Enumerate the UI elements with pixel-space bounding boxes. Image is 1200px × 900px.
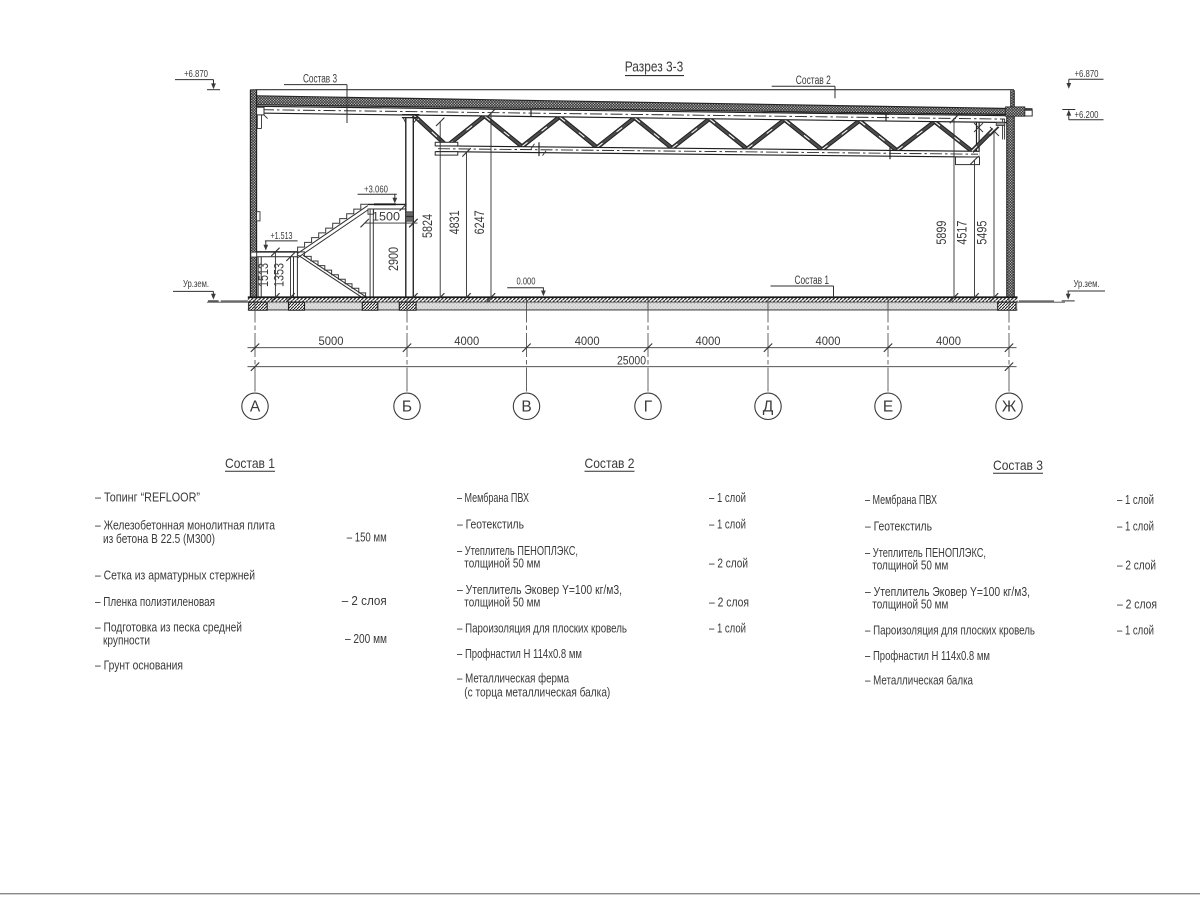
- svg-text:А: А: [250, 399, 261, 416]
- svg-text:Д: Д: [763, 399, 774, 416]
- svg-text:– Топинг “REFLOOR”: – Топинг “REFLOOR”: [95, 491, 200, 505]
- svg-text:4000: 4000: [696, 334, 721, 348]
- svg-text:– 2 слоя: – 2 слоя: [709, 596, 749, 610]
- svg-text:– Металлическая балка: – Металлическая балка: [865, 674, 973, 688]
- svg-text:4000: 4000: [575, 334, 600, 348]
- svg-text:Разрез 3-3: Разрез 3-3: [625, 58, 684, 75]
- svg-text:1353: 1353: [272, 263, 287, 287]
- svg-text:2900: 2900: [386, 247, 401, 271]
- svg-text:25000: 25000: [617, 353, 646, 367]
- svg-text:5495: 5495: [975, 221, 990, 245]
- svg-text:+1.513: +1.513: [271, 230, 293, 242]
- svg-text:– Подготовка из песка средней: – Подготовка из песка средней: [95, 621, 242, 635]
- svg-text:+6.200: +6.200: [1075, 109, 1099, 121]
- svg-text:– 1 слой: – 1 слой: [1117, 493, 1154, 507]
- svg-text:Состав 3: Состав 3: [993, 457, 1043, 473]
- svg-text:Ж: Ж: [1002, 399, 1017, 416]
- svg-text:– 1 слой: – 1 слой: [709, 491, 746, 505]
- svg-text:– Профнастил Н 114х0.8 мм: – Профнастил Н 114х0.8 мм: [457, 647, 582, 661]
- svg-text:толщиной 50 мм: толщиной 50 мм: [464, 557, 540, 571]
- svg-text:толщиной 50 мм: толщиной 50 мм: [872, 559, 948, 573]
- svg-text:– Пленка полиэтиленовая: – Пленка полиэтиленовая: [95, 595, 215, 609]
- svg-text:– Металлическая ферма: – Металлическая ферма: [457, 672, 569, 686]
- svg-text:4517: 4517: [954, 221, 969, 245]
- svg-text:– Мембрана ПВХ: – Мембрана ПВХ: [457, 491, 529, 505]
- svg-text:– Грунт основания: – Грунт основания: [95, 659, 183, 673]
- svg-text:4000: 4000: [936, 334, 961, 348]
- svg-text:толщиной 50 мм: толщиной 50 мм: [464, 596, 540, 610]
- svg-text:Состав 2: Состав 2: [796, 75, 831, 87]
- svg-text:– 1 слой: – 1 слой: [709, 622, 746, 636]
- svg-text:1500: 1500: [372, 210, 400, 224]
- svg-text:– 150 мм: – 150 мм: [347, 531, 387, 545]
- svg-text:(с торца металлическая балка): (с торца металлическая балка): [464, 686, 610, 700]
- svg-text:– Сетка из арматурных стержней: – Сетка из арматурных стержней: [95, 569, 255, 583]
- svg-text:Состав 1: Состав 1: [225, 455, 275, 471]
- svg-text:– 1 слой: – 1 слой: [1117, 520, 1154, 534]
- svg-text:1513: 1513: [256, 263, 271, 287]
- svg-text:В: В: [521, 399, 531, 416]
- svg-text:4000: 4000: [816, 334, 841, 348]
- svg-text:4831: 4831: [447, 210, 462, 234]
- svg-text:– Пароизоляция для плоских кро: – Пароизоляция для плоских кровель: [865, 624, 1035, 638]
- svg-text:Е: Е: [883, 399, 893, 416]
- svg-text:0.000: 0.000: [517, 275, 536, 287]
- svg-text:Б: Б: [402, 399, 412, 416]
- svg-text:– Железобетонная монолитная п: – Железобетонная монолитная плита: [95, 519, 275, 533]
- svg-text:– 2 слоя: – 2 слоя: [1117, 598, 1157, 612]
- svg-text:– Пароизоляция для плоских кро: – Пароизоляция для плоских кровель: [457, 622, 627, 636]
- svg-text:6247: 6247: [472, 210, 487, 234]
- svg-text:– 2 слоя: – 2 слоя: [342, 594, 387, 608]
- svg-text:толщиной 50 мм: толщиной 50 мм: [872, 598, 948, 612]
- svg-text:Ур.зем.: Ур.зем.: [1074, 278, 1100, 290]
- svg-text:– Геотекстиль: – Геотекстиль: [457, 518, 524, 532]
- svg-text:– 2 слой: – 2 слой: [709, 557, 748, 571]
- svg-text:5000: 5000: [319, 334, 344, 348]
- svg-text:Состав 1: Состав 1: [795, 275, 830, 287]
- svg-text:– Профнастил Н 114х0.8 мм: – Профнастил Н 114х0.8 мм: [865, 649, 990, 663]
- svg-text:– Мембрана ПВХ: – Мембрана ПВХ: [865, 493, 937, 507]
- svg-text:+6.870: +6.870: [1075, 68, 1099, 80]
- svg-text:крупности: крупности: [103, 634, 150, 648]
- svg-text:4000: 4000: [454, 334, 479, 348]
- svg-text:5899: 5899: [934, 221, 949, 245]
- svg-text:+3.060: +3.060: [364, 183, 388, 195]
- svg-text:+6.870: +6.870: [184, 68, 208, 80]
- svg-text:– 1 слой: – 1 слой: [709, 518, 746, 532]
- svg-text:Ур.зем.: Ур.зем.: [183, 278, 209, 290]
- svg-text:– Геотекстиль: – Геотекстиль: [865, 520, 932, 534]
- svg-text:из бетона В 22.5 (М300): из бетона В 22.5 (М300): [103, 532, 215, 546]
- svg-text:Состав 2: Состав 2: [585, 455, 635, 471]
- svg-text:– 2 слой: – 2 слой: [1117, 559, 1156, 573]
- svg-text:5824: 5824: [420, 214, 435, 238]
- svg-text:Состав 3: Состав 3: [303, 73, 337, 85]
- svg-text:– 1 слой: – 1 слой: [1117, 624, 1154, 638]
- svg-text:– 200 мм: – 200 мм: [345, 632, 387, 646]
- svg-text:Г: Г: [644, 399, 653, 416]
